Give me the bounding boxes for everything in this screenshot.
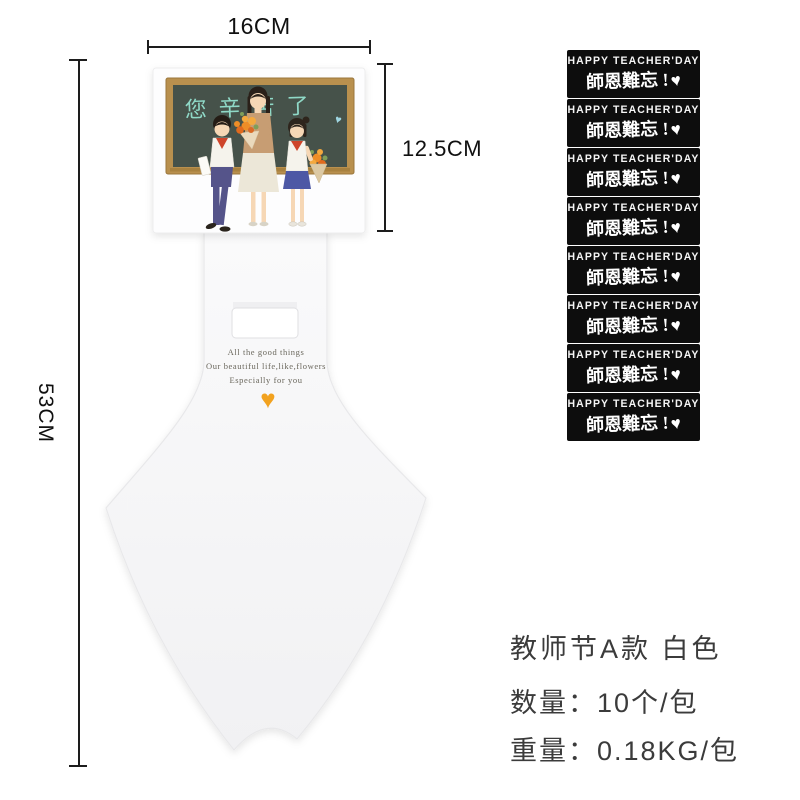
illustration-card: 您辛苦了 ♥ bbox=[153, 68, 365, 233]
sticker-line1: HAPPY TEACHER'DAY bbox=[567, 398, 699, 411]
sticker-row2: 師恩難忘 ! ♥ bbox=[586, 67, 682, 93]
sticker-heart-icon: ♥ bbox=[670, 169, 683, 188]
sticker-line1: HAPPY TEACHER'DAY bbox=[567, 55, 699, 68]
sticker-line2: 師恩難忘 ! bbox=[585, 164, 668, 193]
sticker-heart-icon: ♥ bbox=[670, 316, 683, 335]
sticker-line1: HAPPY TEACHER'DAY bbox=[567, 300, 699, 313]
sticker: HAPPY TEACHER'DAY 師恩難忘 ! ♥ bbox=[567, 148, 700, 196]
sticker-row2: 師恩難忘 ! ♥ bbox=[586, 116, 682, 142]
sticker-line1: HAPPY TEACHER'DAY bbox=[567, 153, 699, 166]
sticker-row2: 師恩難忘 ! ♥ bbox=[586, 361, 682, 387]
sticker-line2: 師恩難忘 ! bbox=[585, 360, 668, 389]
sticker-heart-icon: ♥ bbox=[670, 218, 683, 237]
sticker: HAPPY TEACHER'DAY 師恩難忘 ! ♥ bbox=[567, 393, 700, 441]
product-title: 教师节A款 白色 bbox=[510, 627, 739, 666]
sticker-line2: 師恩難忘 ! bbox=[585, 262, 668, 291]
sticker-line1: HAPPY TEACHER'DAY bbox=[567, 104, 699, 117]
sticker-line2: 師恩難忘 ! bbox=[585, 66, 668, 95]
sticker-heart-icon: ♥ bbox=[670, 365, 683, 384]
sticker: HAPPY TEACHER'DAY 師恩難忘 ! ♥ bbox=[567, 50, 700, 98]
hang-hole bbox=[232, 308, 298, 338]
sticker-stack: HAPPY TEACHER'DAY 師恩難忘 ! ♥ HAPPY TEACHER… bbox=[567, 50, 700, 441]
product-weight: 重量：0.18KG/包 bbox=[510, 729, 739, 768]
sticker-heart-icon: ♥ bbox=[670, 120, 683, 139]
product-quantity: 数量：10个/包 bbox=[510, 681, 739, 720]
sticker-row2: 師恩難忘 ! ♥ bbox=[586, 312, 682, 338]
sticker: HAPPY TEACHER'DAY 師恩難忘 ! ♥ bbox=[567, 197, 700, 245]
product-info: 教师节A款 白色 数量：10个/包 重量：0.18KG/包 bbox=[510, 627, 739, 777]
message-line-1: All the good things bbox=[228, 347, 305, 357]
product-photo: 53CM 16CM 12.5CM All the bbox=[0, 0, 800, 800]
sticker-line1: HAPPY TEACHER'DAY bbox=[567, 349, 699, 362]
sticker-line2: 師恩難忘 ! bbox=[585, 115, 668, 144]
sticker-line2: 師恩難忘 ! bbox=[585, 409, 668, 438]
sticker-heart-icon: ♥ bbox=[670, 414, 683, 433]
message-line-2: Our beautiful life,like,flowers bbox=[206, 361, 326, 371]
sticker-line1: HAPPY TEACHER'DAY bbox=[567, 202, 699, 215]
sticker-line2: 師恩難忘 ! bbox=[585, 311, 668, 340]
sticker: HAPPY TEACHER'DAY 師恩難忘 ! ♥ bbox=[567, 344, 700, 392]
sticker-row2: 師恩難忘 ! ♥ bbox=[586, 214, 682, 240]
heart-icon: ♥ bbox=[260, 384, 275, 414]
sticker: HAPPY TEACHER'DAY 師恩難忘 ! ♥ bbox=[567, 246, 700, 294]
sticker-line2: 師恩難忘 ! bbox=[585, 213, 668, 242]
sticker: HAPPY TEACHER'DAY 師恩難忘 ! ♥ bbox=[567, 295, 700, 343]
sticker-heart-icon: ♥ bbox=[670, 267, 683, 286]
sticker: HAPPY TEACHER'DAY 師恩難忘 ! ♥ bbox=[567, 99, 700, 147]
sticker-heart-icon: ♥ bbox=[670, 71, 683, 90]
sticker-row2: 師恩難忘 ! ♥ bbox=[586, 263, 682, 289]
fold-crease bbox=[233, 302, 297, 308]
sticker-row2: 師恩難忘 ! ♥ bbox=[586, 165, 682, 191]
sticker-line1: HAPPY TEACHER'DAY bbox=[567, 251, 699, 264]
sticker-row2: 師恩難忘 ! ♥ bbox=[586, 410, 682, 436]
